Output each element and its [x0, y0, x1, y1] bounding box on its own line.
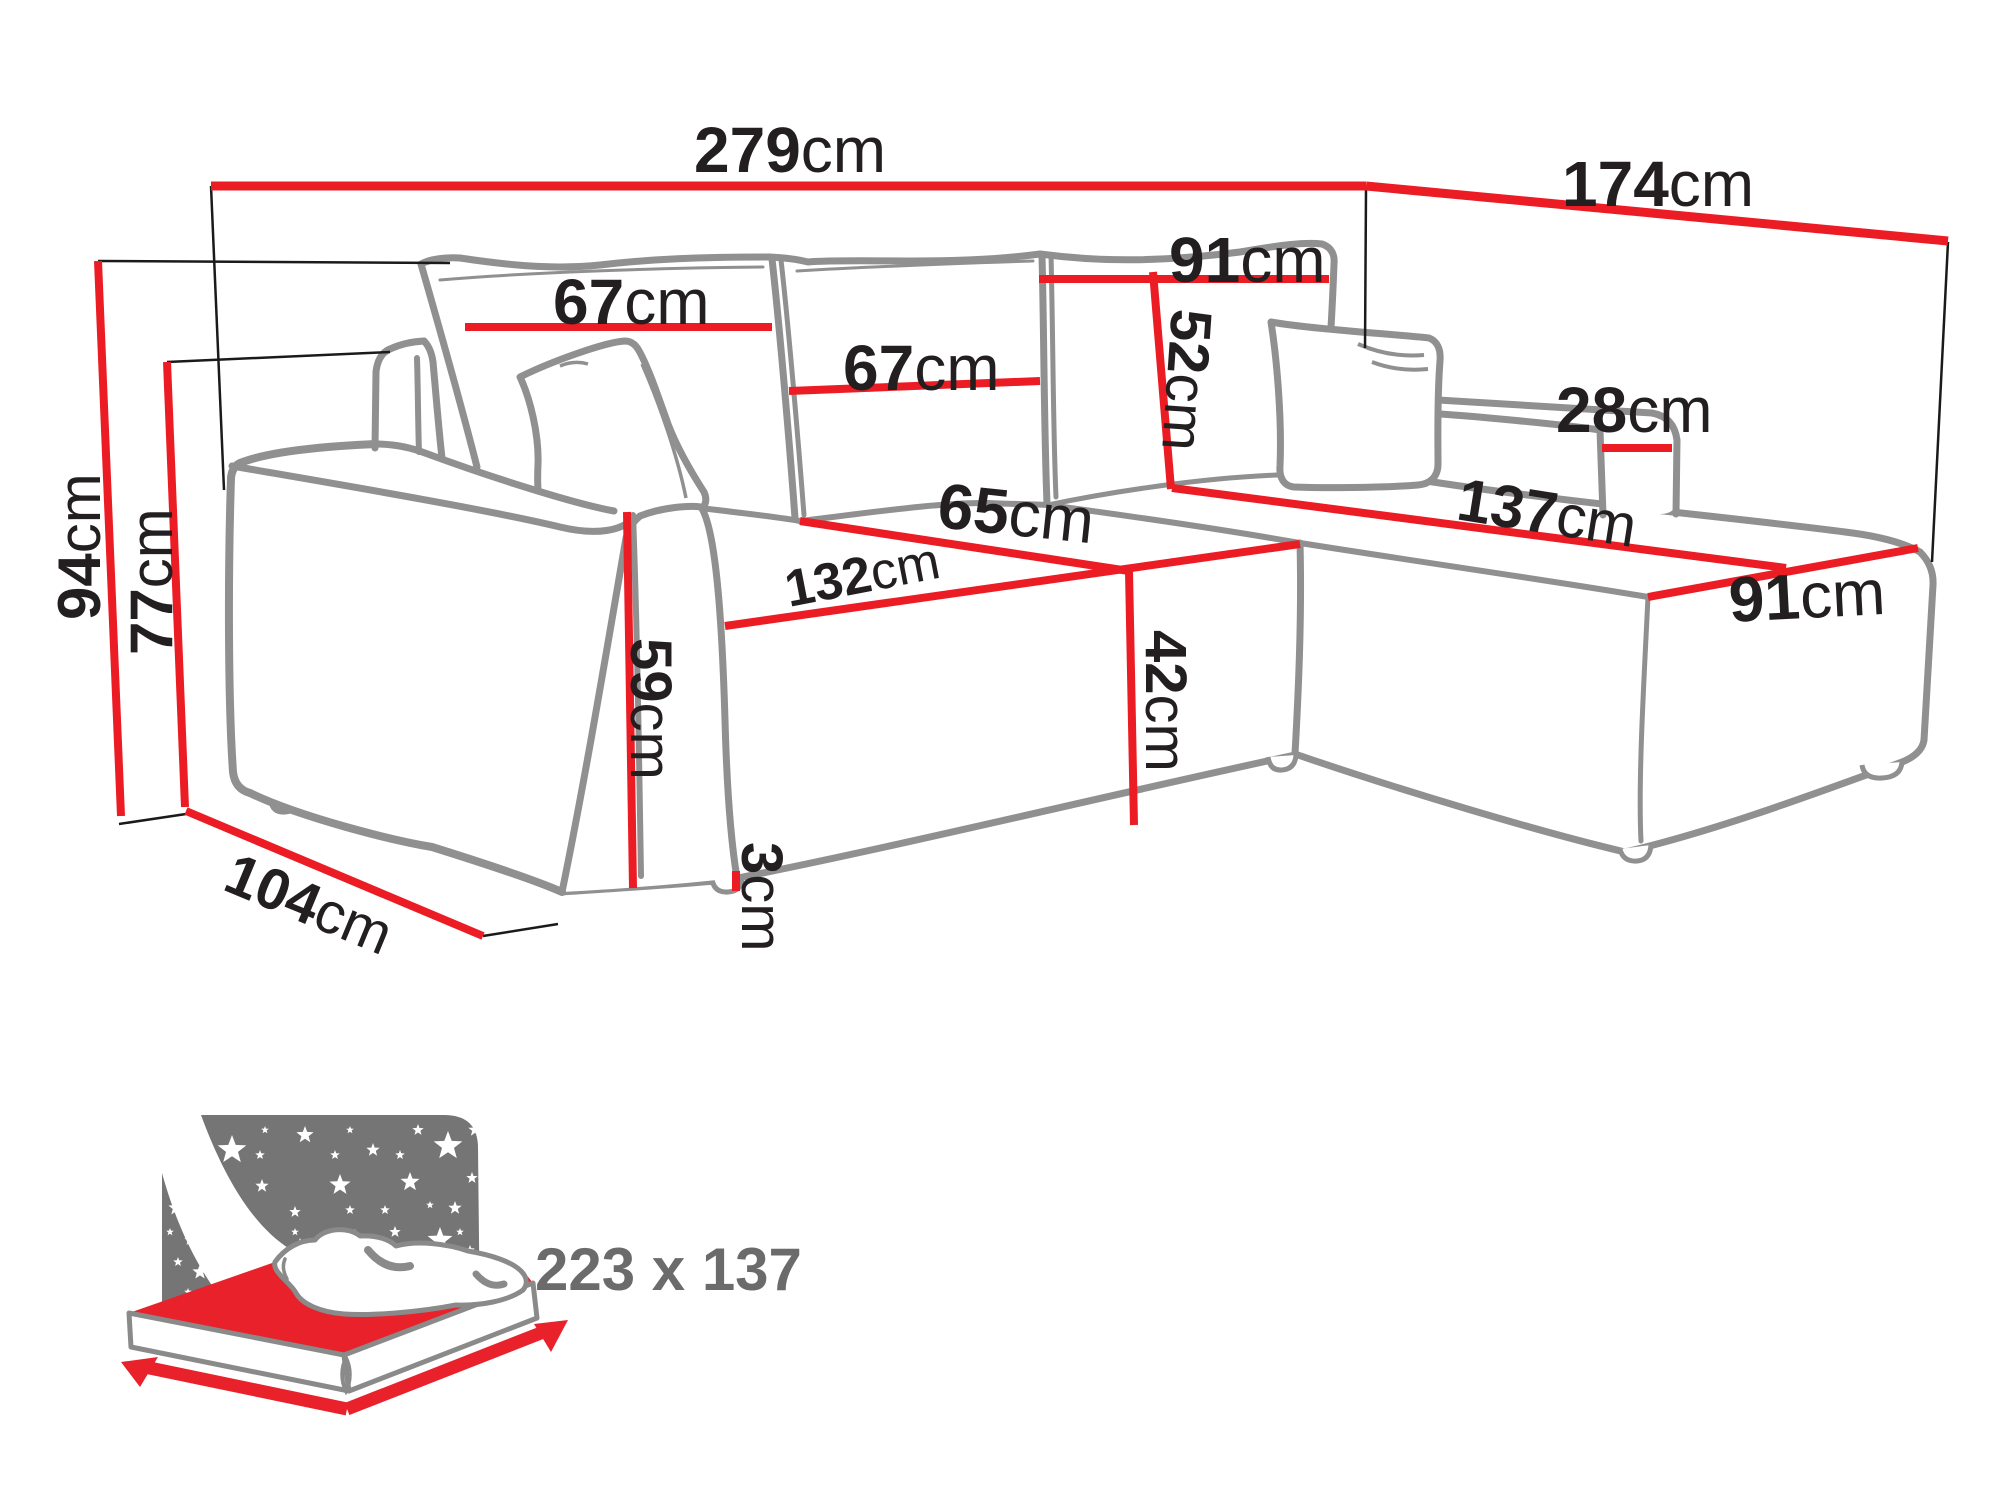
svg-text:67cm: 67cm: [843, 332, 1000, 404]
svg-text:279cm: 279cm: [694, 114, 886, 186]
svg-text:42cm: 42cm: [1133, 630, 1198, 772]
svg-text:91cm: 91cm: [1169, 224, 1326, 296]
svg-text:67cm: 67cm: [553, 266, 710, 338]
svg-text:91cm: 91cm: [1727, 556, 1887, 636]
svg-text:77cm: 77cm: [118, 508, 185, 655]
svg-text:94cm: 94cm: [46, 473, 113, 620]
svg-text:174cm: 174cm: [1562, 148, 1754, 220]
svg-text:223 x 137: 223 x 137: [535, 1236, 802, 1303]
svg-text:59cm: 59cm: [618, 638, 683, 780]
svg-text:52cm: 52cm: [1149, 307, 1224, 453]
svg-text:28cm: 28cm: [1556, 374, 1713, 446]
svg-text:3cm: 3cm: [729, 842, 794, 952]
